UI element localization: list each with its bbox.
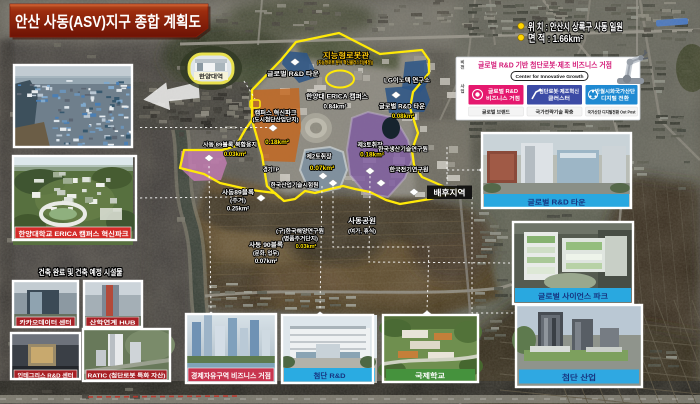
svg-text:0.08km²: 0.08km² <box>392 113 414 120</box>
svg-text:0.18km²: 0.18km² <box>265 139 289 146</box>
svg-text:글로벌 R&D: 글로벌 R&D <box>488 87 518 95</box>
svg-text:제2토취장: 제2토취장 <box>307 153 332 161</box>
svg-text:한국생산기술연구원: 한국생산기술연구원 <box>378 145 428 153</box>
svg-text:0.03km²: 0.03km² <box>224 151 246 158</box>
svg-text:안산 사동(ASV)지구 종합 계획도: 안산 사동(ASV)지구 종합 계획도 <box>15 12 201 31</box>
svg-text:(주거): (주거) <box>230 197 246 205</box>
svg-text:비즈니스 거점: 비즈니스 거점 <box>486 94 520 102</box>
svg-text:면 적 : 1.66km²: 면 적 : 1.66km² <box>528 32 583 45</box>
svg-text:산학연계 HUB: 산학연계 HUB <box>90 319 136 327</box>
svg-text:국가산단 디지털전환 Out Post: 국가산단 디지털전환 Out Post <box>588 109 637 116</box>
svg-text:글로벌 사이언스 파크: 글로벌 사이언스 파크 <box>538 292 609 301</box>
svg-text:첨단 R&D: 첨단 R&D <box>314 371 346 380</box>
svg-text:0.07km²: 0.07km² <box>310 165 335 172</box>
svg-text:경제자유구역 비즈니스 거점: 경제자유구역 비즈니스 거점 <box>191 371 271 380</box>
svg-text:(명품주거단지): (명품주거단지) <box>282 235 318 243</box>
svg-text:국가전략기술 확충: 국가전략기술 확충 <box>536 109 575 116</box>
svg-text:배후지역: 배후지역 <box>434 188 466 198</box>
svg-text:0.84km²: 0.84km² <box>323 104 346 111</box>
svg-text:사동공원: 사동공원 <box>348 216 376 225</box>
svg-text:글로벌 브랜드: 글로벌 브랜드 <box>482 109 511 116</box>
svg-text:RATIC (첨단로봇 특화 자산): RATIC (첨단로봇 특화 자산) <box>88 372 166 380</box>
svg-text:글로벌 R&D 타운: 글로벌 R&D 타운 <box>379 103 425 111</box>
svg-text:(지능형로봇 분야 혁신클러스터(예정)): (지능형로봇 분야 혁신클러스터(예정)) <box>317 59 373 66</box>
svg-text:글로벌 R&D 타운: 글로벌 R&D 타운 <box>267 70 319 78</box>
svg-text:한국전기연구원: 한국전기연구원 <box>390 166 429 174</box>
svg-text:국제학교: 국제학교 <box>415 371 446 380</box>
svg-text:지능형로봇관: 지능형로봇관 <box>323 51 369 60</box>
svg-text:위 치 : 안산시 상록구 사동 일원: 위 치 : 안산시 상록구 사동 일원 <box>528 21 623 34</box>
svg-text:카카오데이터 센터: 카카오데이터 센터 <box>20 319 72 327</box>
svg-text:LG이노텍 연구소: LG이노텍 연구소 <box>384 77 430 85</box>
svg-text:클러스터: 클러스터 <box>548 95 570 102</box>
svg-text:전: 전 <box>461 64 465 71</box>
svg-text:업: 업 <box>461 88 465 95</box>
svg-text:Center for Innovative Growth: Center for Innovative Growth <box>516 74 584 79</box>
svg-text:사동89블록: 사동89블록 <box>222 189 254 197</box>
svg-text:글로벌 R&D 기반 첨단로봇·제조 비즈니스 거점: 글로벌 R&D 기반 첨단로봇·제조 비즈니스 거점 <box>478 61 612 70</box>
svg-text:0.25km²: 0.25km² <box>227 206 249 213</box>
svg-text:0.07km²: 0.07km² <box>255 258 277 265</box>
svg-text:한국산업기술시험원: 한국산업기술시험원 <box>271 181 319 189</box>
svg-text:한양대학교 ERICA 캠퍼스 혁신파크: 한양대학교 ERICA 캠퍼스 혁신파크 <box>19 229 129 238</box>
svg-text:0.03km²: 0.03km² <box>296 243 317 250</box>
svg-text:(도시첨단산업단지): (도시첨단산업단지) <box>253 116 299 124</box>
svg-text:첨단 산업: 첨단 산업 <box>562 372 596 382</box>
svg-text:첨단로봇·제조혁신: 첨단로봇·제조혁신 <box>539 88 579 95</box>
svg-text:건축 완료 및 건축 예정 시설물: 건축 완료 및 건축 예정 시설물 <box>39 267 123 277</box>
svg-text:(문화, 업무): (문화, 업무) <box>253 249 279 257</box>
svg-text:사동 89블록 복합용지: 사동 89블록 복합용지 <box>203 141 257 149</box>
svg-text:(구)한국해양연구원: (구)한국해양연구원 <box>276 227 324 235</box>
svg-text:한양대역: 한양대역 <box>199 73 223 81</box>
svg-text:한양대 ERICA 캠퍼스: 한양대 ERICA 캠퍼스 <box>306 92 368 101</box>
svg-text:사동 90블록: 사동 90블록 <box>249 241 283 249</box>
svg-text:디지털 전환: 디지털 전환 <box>601 95 629 102</box>
svg-text:경기TP: 경기TP <box>263 166 279 174</box>
svg-text:(여가, 휴식): (여가, 휴식) <box>348 227 376 235</box>
svg-text:캠퍼스 혁신파크: 캠퍼스 혁신파크 <box>255 109 297 117</box>
svg-text:반월시화국가산단: 반월시화국가산단 <box>595 88 635 95</box>
svg-text:글로벌 R&D 타운: 글로벌 R&D 타운 <box>528 198 587 207</box>
